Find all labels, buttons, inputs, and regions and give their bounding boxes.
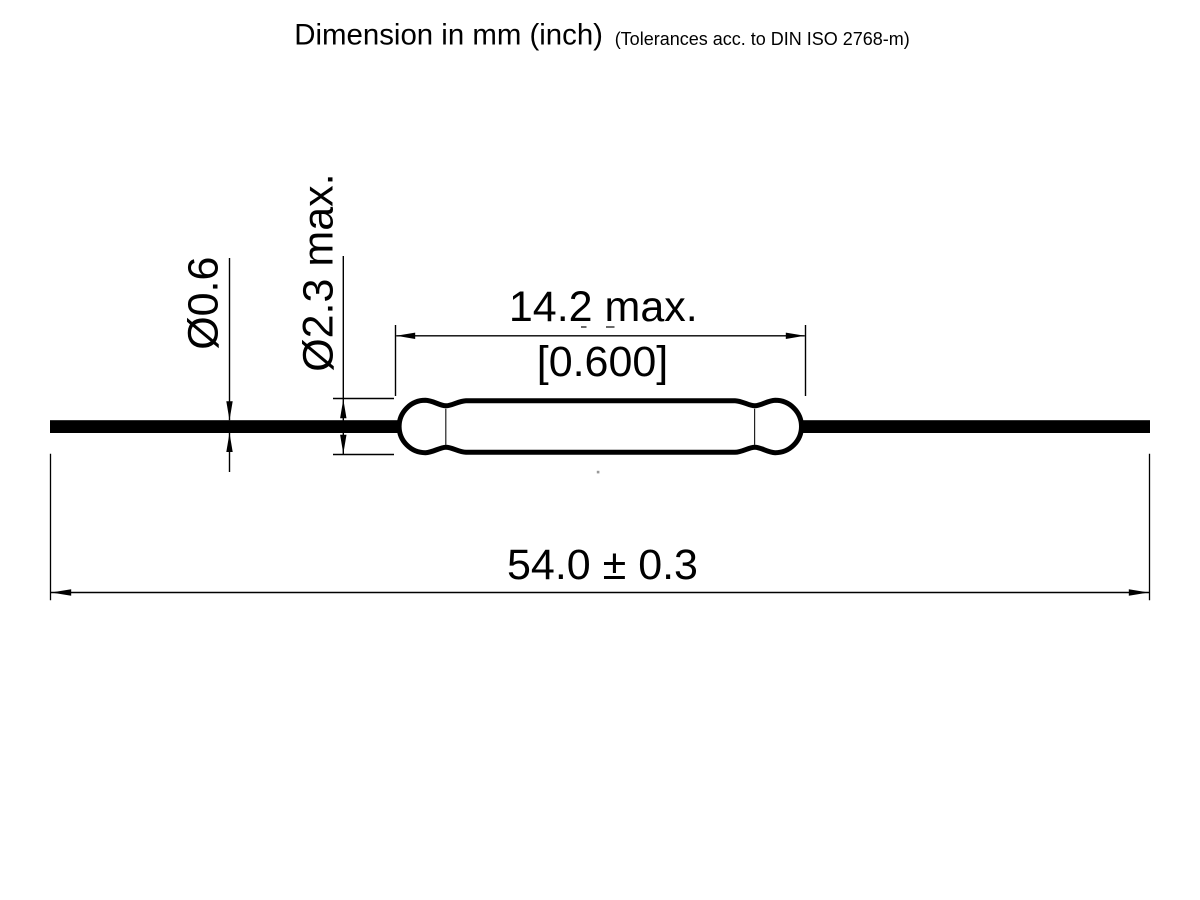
svg-text:Ø2.3 max.: Ø2.3 max. bbox=[294, 173, 342, 371]
svg-text:Dimension in mm (inch): Dimension in mm (inch) bbox=[294, 19, 603, 52]
svg-text:14.2 max.: 14.2 max. bbox=[509, 283, 698, 331]
svg-text:[0.600]: [0.600] bbox=[537, 338, 669, 386]
svg-text:54.0 ± 0.3: 54.0 ± 0.3 bbox=[507, 541, 698, 589]
svg-text:(Tolerances acc. to DIN ISO 27: (Tolerances acc. to DIN ISO 2768-m) bbox=[615, 29, 910, 49]
svg-text:Ø0.6: Ø0.6 bbox=[179, 257, 227, 350]
